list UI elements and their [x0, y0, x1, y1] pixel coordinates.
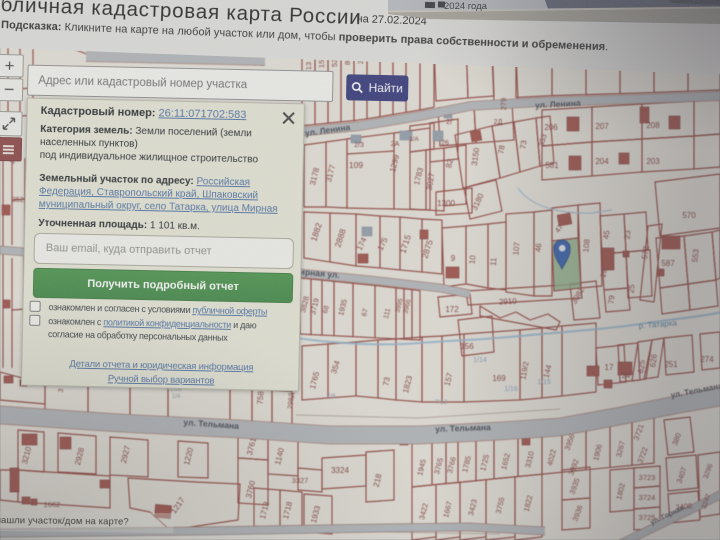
svg-text:46: 46 [534, 242, 544, 252]
svg-text:626: 626 [648, 353, 659, 368]
svg-text:78: 78 [496, 144, 506, 155]
svg-text:3723: 3723 [639, 473, 656, 482]
svg-text:208: 208 [646, 121, 660, 130]
svg-text:203: 203 [646, 157, 660, 166]
svg-text:79: 79 [607, 294, 617, 304]
svg-text:553: 553 [690, 248, 700, 263]
svg-text:2910: 2910 [499, 297, 518, 307]
svg-text:570: 570 [682, 211, 696, 220]
svg-text:73: 73 [518, 139, 528, 150]
svg-text:207: 207 [595, 122, 609, 131]
svg-text:204: 204 [595, 157, 609, 166]
svg-text:625: 625 [636, 359, 647, 374]
svg-text:17: 17 [605, 363, 614, 372]
svg-text:274: 274 [700, 355, 714, 364]
svg-text:2024 года: 2024 года [444, 1, 488, 12]
svg-text:108: 108 [581, 238, 591, 253]
svg-text:45: 45 [602, 229, 612, 239]
svg-text:3724: 3724 [639, 493, 656, 502]
svg-text:251: 251 [664, 360, 678, 369]
svg-text:169: 169 [492, 374, 506, 383]
svg-text:23: 23 [623, 229, 633, 239]
svg-text:1/16: 1/16 [504, 386, 518, 393]
svg-text:25: 25 [627, 283, 637, 293]
svg-text:24: 24 [622, 371, 630, 380]
svg-text:581: 581 [545, 161, 559, 170]
svg-text:107: 107 [511, 241, 521, 256]
svg-text:279: 279 [499, 98, 508, 111]
svg-text:206: 206 [544, 123, 558, 132]
svg-text:1/15: 1/15 [537, 379, 551, 386]
svg-text:587: 587 [661, 259, 675, 268]
